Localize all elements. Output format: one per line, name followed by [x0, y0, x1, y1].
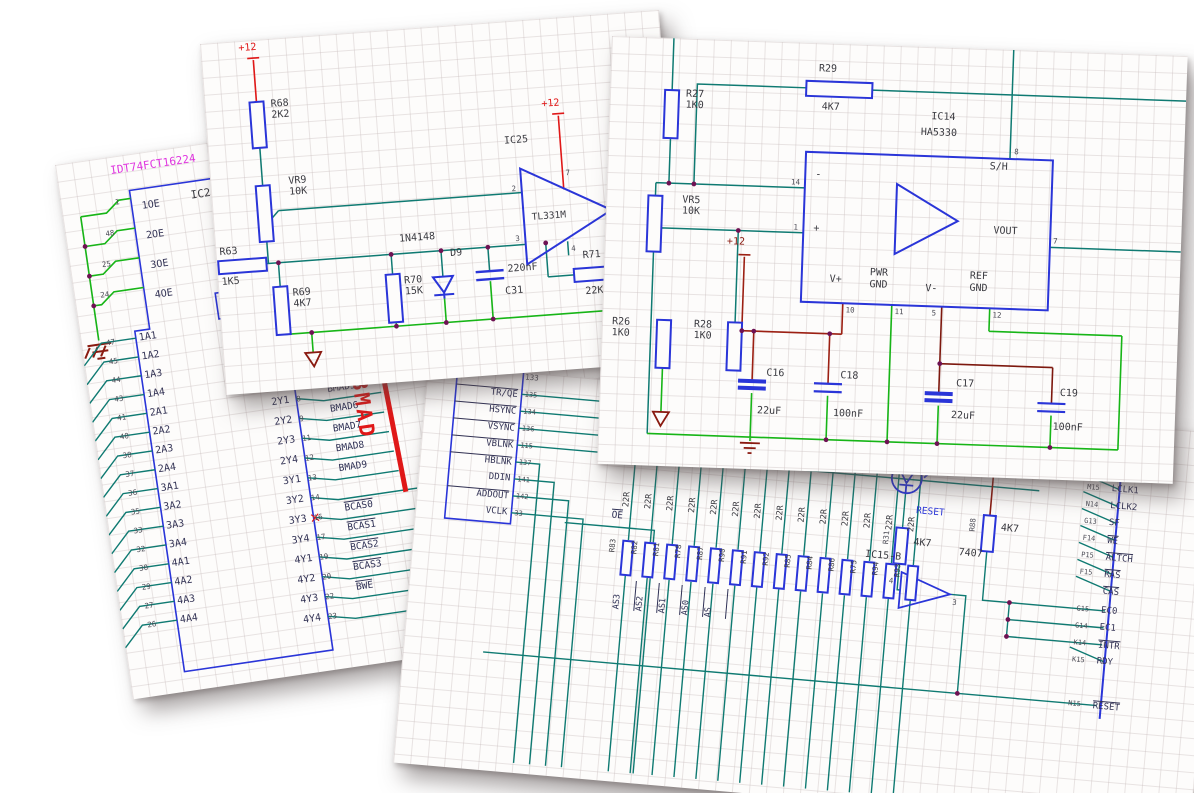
resistor-ref: R82	[629, 540, 639, 554]
ic14-pin: 10	[845, 306, 854, 314]
r70-value: 15K	[405, 285, 424, 297]
ground-wires	[281, 271, 632, 355]
c31-value: 220nF	[507, 262, 538, 275]
opamp-pin: 7	[565, 169, 570, 177]
oe-ground-bus	[79, 198, 150, 340]
r29-value: 4K7	[821, 101, 839, 113]
supply-wires	[734, 255, 844, 385]
vr5-ref: VR5	[682, 195, 700, 207]
resistor-ref: R84	[805, 556, 815, 570]
resistor-r27	[663, 90, 679, 138]
ic2-ref-label: IC2	[190, 187, 211, 201]
c16-ref: C16	[766, 368, 784, 380]
resistor-value: 22R	[643, 493, 654, 509]
resistor-ref: R85	[783, 554, 793, 568]
ic14-pin: 12	[992, 311, 1001, 319]
ic14-ref: IC14	[931, 111, 955, 123]
resistor-value: 22R	[753, 503, 764, 519]
r71-value: 22K	[585, 285, 604, 297]
resistor-value: 22R	[621, 491, 632, 507]
earth-ground-icon	[740, 443, 760, 454]
resistor-value: 22R	[775, 505, 786, 521]
ic14-pin: 14	[791, 178, 800, 186]
pwrgnd-pin-label: GND	[869, 279, 887, 291]
ground-symbol-icon	[305, 352, 322, 367]
refgnd-pin-label: REF	[970, 271, 988, 283]
r29-ref: R29	[819, 63, 837, 75]
buffer-pin-in: 4	[888, 577, 893, 585]
vplus-pin-label: V+	[829, 274, 841, 285]
opamp-pin: 2	[511, 185, 516, 193]
resistor-body	[904, 565, 919, 602]
opamp-pin: 3	[515, 235, 520, 243]
c18-value: 100nF	[833, 408, 863, 420]
resistor-ref: R86	[826, 558, 836, 572]
r26-value: 1K0	[611, 327, 629, 339]
r28-ref: R28	[694, 319, 712, 331]
resistor-value: 22R	[840, 511, 851, 527]
ic14-pin: 5	[931, 309, 936, 317]
r88-ref-label: R88	[968, 518, 977, 532]
c17-ref: C17	[956, 378, 974, 390]
capacitor-c19-icon	[1037, 403, 1065, 412]
supply-label: +12	[541, 98, 560, 110]
vr5-value: 10K	[682, 206, 700, 218]
c19-value: 100nF	[1052, 422, 1082, 434]
resistor-r68	[249, 101, 266, 148]
resistor-ref: R81	[651, 542, 661, 556]
connector-rows-top: M15LCLK1N14LCLK2G13SFF14WEP15ALTCHF15RAS…	[1038, 475, 1194, 607]
c17-value: 22uF	[951, 410, 975, 422]
r69-value: 4K7	[293, 297, 312, 309]
ground-triangle-icon	[652, 412, 668, 427]
ic25-ref: IC25	[504, 134, 529, 147]
resistor-ref: R83	[607, 538, 617, 552]
resistor-value: 22R	[665, 495, 676, 511]
resistor-value: 22R	[731, 501, 742, 517]
schematic-collage: IDT74FCT16224 IC2 1OE2OE3OE4OE 1 48 25 2…	[0, 0, 1194, 793]
oe-pin-number: 24	[100, 291, 110, 300]
r31-value-label: 4K7	[913, 537, 932, 550]
c19-ref: C19	[1060, 388, 1078, 400]
resistor-value: 22R	[906, 516, 917, 532]
oe-pin-number: 25	[101, 260, 111, 269]
resistor-ref: R87	[695, 546, 705, 560]
resistor-r28	[726, 322, 742, 370]
inv-input-label: -	[815, 169, 821, 180]
sh-pin-label: S/H	[989, 161, 1007, 173]
oe-pin-number: 48	[105, 229, 115, 238]
resistor-ref: R92	[761, 552, 771, 566]
resistor-value: 22R	[819, 509, 830, 525]
opamp-triangle-icon	[895, 184, 959, 256]
resistor-r29	[806, 81, 872, 98]
c18-ref: C18	[840, 370, 858, 382]
signal-wires	[642, 38, 1187, 452]
net-stub: AS1	[657, 583, 683, 615]
net-stub: AS0	[680, 585, 706, 617]
vminus-pin-label: V-	[925, 283, 937, 294]
net-stub: AS2	[634, 581, 660, 613]
capacitor-c17-icon	[924, 393, 952, 401]
ic14-pin: 8	[1014, 148, 1019, 156]
capacitor-c18-icon	[814, 383, 842, 392]
supply-label: +12	[727, 236, 745, 248]
resistor-value: 22R	[862, 513, 873, 529]
vr9-value: 10K	[289, 185, 308, 197]
resistor-r63	[218, 258, 267, 275]
supply-label: +12	[238, 42, 257, 54]
pwrgnd-pin-label: PWR	[870, 267, 888, 279]
resistor-value: 22R	[687, 497, 698, 513]
potentiometer-vr9	[256, 185, 274, 242]
resistor-r26	[655, 320, 671, 368]
resistor-r70	[386, 274, 404, 323]
opamp-pin: 4	[571, 245, 576, 253]
refgnd-pin-label: GND	[969, 283, 987, 295]
resistor-value: 22R	[797, 507, 808, 523]
big-ic-pin-rows: TR/QE135HSYNC134VSYNC136VBLNK115HBLNK137…	[445, 380, 586, 527]
oe-pin-number: 1	[114, 198, 120, 207]
ic14-pin: 7	[1053, 238, 1058, 246]
hidden-pin-number: 133	[525, 374, 539, 383]
resistor-value: 22R	[709, 499, 720, 515]
c31-ref: C31	[505, 285, 524, 297]
schematic-sheet-samplehold: R27 1K0 R29 4K7 VR5 10K IC14 HA5330 - + …	[597, 36, 1188, 484]
r28-value: 1K0	[693, 330, 711, 342]
net-stub: AS3	[611, 579, 637, 611]
ic14-part: HA5330	[921, 127, 957, 139]
diode-d9-icon	[433, 276, 455, 299]
potentiometer-vr5	[647, 195, 663, 251]
led-net-label: RESET	[916, 505, 945, 518]
ic14-pin: 11	[894, 308, 903, 316]
r88-value-label: 4K7	[1000, 523, 1019, 536]
resistor-ref: R94	[870, 561, 880, 575]
c16-value: 22uF	[757, 405, 781, 417]
r27-value: 1K0	[685, 100, 703, 112]
ground-wires	[647, 297, 1123, 454]
resistor-ref: R91	[739, 550, 749, 564]
r31-ref-label: R31	[882, 530, 891, 544]
ic14-pin: 1	[793, 223, 798, 231]
capacitor-c31-icon	[476, 270, 505, 280]
resistor-ref: R78	[673, 544, 683, 558]
d9-ref: D9	[450, 247, 463, 259]
resistor-ref: R75	[848, 559, 858, 573]
resistor-r88	[981, 515, 996, 552]
connector-rows-mid: G15EC0G14EC1K14INTRK15RDY	[1032, 597, 1194, 679]
buffer-pin-out: 3	[952, 599, 957, 607]
vout-pin-label: VOUT	[993, 225, 1017, 237]
capacitor-c16-icon	[738, 381, 766, 389]
resistor-r69	[273, 286, 291, 335]
r27-ref: R27	[686, 89, 704, 101]
ground-symbols	[652, 412, 761, 454]
junction-dots	[955, 596, 1012, 700]
r63-value: 1K5	[221, 276, 240, 288]
r68-value: 2K2	[271, 109, 290, 121]
net-stub: AS	[703, 587, 729, 619]
resistor-value: 22R	[884, 514, 895, 530]
r71-ref: R71	[582, 249, 601, 261]
r63-ref: R63	[219, 246, 238, 258]
r26-ref: R26	[612, 316, 630, 328]
ic15-part-label: 7407	[958, 547, 983, 560]
resistor-ref: R90	[717, 548, 727, 562]
noninv-input-label: +	[813, 223, 819, 234]
